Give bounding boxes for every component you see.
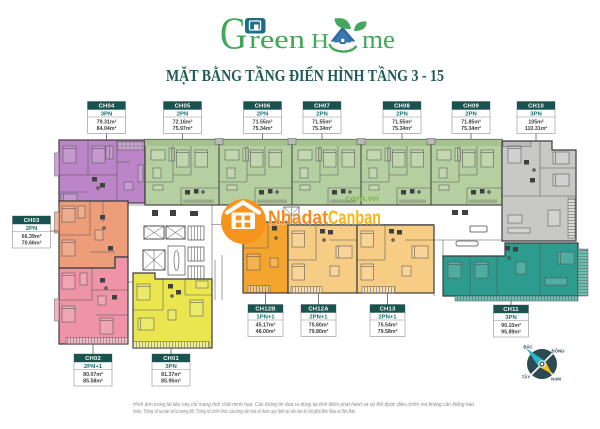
svg-text:CH04: CH04 (99, 104, 115, 110)
svg-text:2PN: 2PN (26, 226, 37, 232)
svg-text:95.89m²: 95.89m² (501, 330, 521, 336)
svg-text:85.58m²: 85.58m² (83, 379, 103, 385)
svg-text:3PN: 3PN (101, 112, 112, 118)
svg-text:com.vn: com.vn (345, 193, 379, 203)
svg-text:2PN: 2PN (465, 112, 476, 118)
svg-text:66.39m²: 66.39m² (22, 234, 42, 240)
svg-text:79.31m²: 79.31m² (97, 120, 117, 126)
svg-text:Nhadat: Nhadat (268, 207, 328, 229)
svg-text:BẮC: BẮC (523, 345, 532, 350)
svg-text:CH07: CH07 (314, 104, 330, 110)
svg-text:3PN: 3PN (165, 364, 176, 370)
svg-text:CH11: CH11 (503, 307, 519, 313)
svg-text:CH02: CH02 (85, 356, 101, 362)
svg-text:75.34m²: 75.34m² (392, 126, 412, 132)
svg-text:2PN: 2PN (316, 112, 327, 118)
svg-text:71.55m²: 71.55m² (312, 120, 332, 126)
svg-text:2PN+1: 2PN+1 (84, 364, 103, 370)
svg-text:2PN: 2PN (177, 112, 188, 118)
svg-text:CH12A: CH12A (308, 307, 329, 313)
svg-text:3PN: 3PN (530, 112, 541, 118)
svg-text:Canban: Canban (328, 207, 381, 229)
svg-text:trước. Thông số tại bản vẽ là: trước. Thông số tại bản vẽ là tương đối.… (133, 408, 356, 415)
svg-text:TÂY: TÂY (522, 375, 531, 380)
svg-text:CH09: CH09 (463, 104, 479, 110)
svg-text:75.54m²: 75.54m² (378, 323, 398, 329)
svg-text:1PN+1: 1PN+1 (256, 315, 275, 321)
svg-text:90.10m²: 90.10m² (501, 323, 521, 329)
svg-text:ĐÔNG: ĐÔNG (552, 349, 566, 354)
svg-text:48.00m²: 48.00m² (256, 329, 276, 335)
svg-text:79.58m²: 79.58m² (378, 329, 398, 335)
svg-text:110.31m²: 110.31m² (525, 126, 548, 132)
svg-text:85.95m²: 85.95m² (161, 379, 181, 385)
svg-text:3PN: 3PN (505, 315, 516, 321)
svg-text:105m²: 105m² (528, 120, 544, 126)
svg-text:81.37m²: 81.37m² (161, 372, 181, 378)
svg-text:MẶT BẰNG TẦNG ĐIỂN HÌNH TẦNG 3: MẶT BẰNG TẦNG ĐIỂN HÌNH TẦNG 3 - 15 (166, 66, 444, 85)
svg-text:2PN+1: 2PN+1 (309, 315, 328, 321)
svg-text:75.34m²: 75.34m² (253, 126, 273, 132)
svg-text:80.07m²: 80.07m² (83, 372, 103, 378)
svg-text:CH13: CH13 (380, 307, 396, 313)
svg-text:CH06: CH06 (255, 104, 271, 110)
svg-text:84.04m²: 84.04m² (97, 126, 117, 132)
svg-text:71.55m²: 71.55m² (392, 120, 412, 126)
svg-text:45.17m²: 45.17m² (256, 323, 276, 329)
svg-text:Hình ảnh trong tài liệu này ch: Hình ảnh trong tài liệu này chỉ mang tín… (133, 401, 474, 408)
svg-text:G: G (220, 9, 247, 59)
svg-text:71.85m²: 71.85m² (461, 120, 481, 126)
svg-text:71.55m²: 71.55m² (253, 120, 273, 126)
svg-text:75.60m²: 75.60m² (309, 323, 329, 329)
svg-text:CH01: CH01 (163, 356, 179, 362)
svg-text:72.16m²: 72.16m² (173, 120, 193, 126)
svg-text:CH10: CH10 (528, 104, 544, 110)
svg-text:79.80m²: 79.80m² (309, 329, 329, 335)
svg-text:2PN: 2PN (257, 112, 268, 118)
svg-text:2PN+1: 2PN+1 (378, 315, 397, 321)
svg-text:CH12B: CH12B (255, 307, 275, 313)
svg-text:75.97m²: 75.97m² (173, 126, 193, 132)
svg-text:2PN: 2PN (396, 112, 407, 118)
svg-text:H: H (311, 29, 329, 53)
svg-text:NAM: NAM (551, 377, 561, 382)
svg-text:75.34m²: 75.34m² (461, 126, 481, 132)
svg-text:CH03: CH03 (24, 218, 40, 224)
svg-text:70.66m²: 70.66m² (22, 241, 42, 247)
svg-text:CH05: CH05 (175, 104, 191, 110)
svg-text:me: me (362, 25, 395, 54)
svg-text:75.34m²: 75.34m² (312, 126, 332, 132)
svg-text:CH08: CH08 (394, 104, 410, 110)
